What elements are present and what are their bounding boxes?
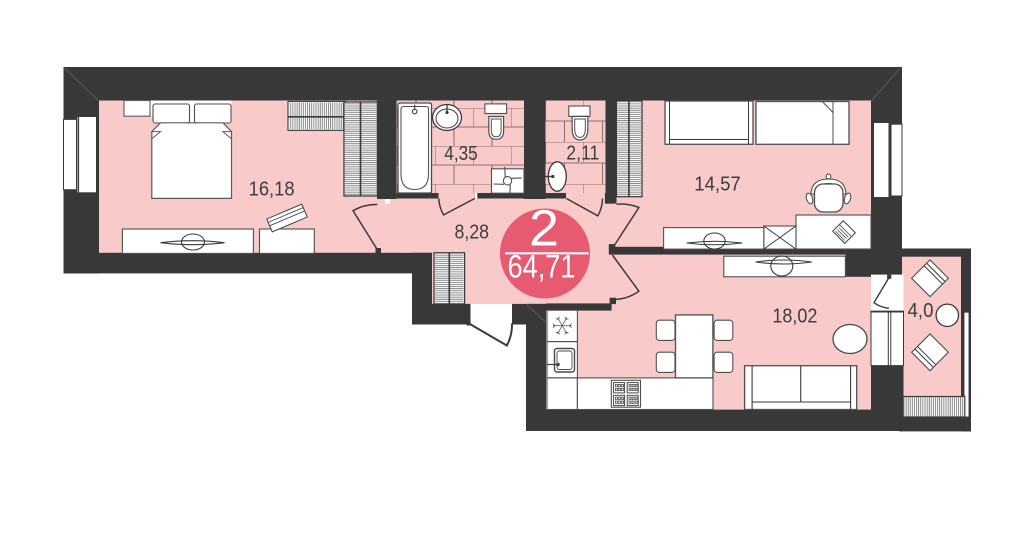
svg-text:18,02: 18,02 [772, 305, 817, 327]
svg-text:4,35: 4,35 [444, 143, 478, 165]
svg-text:16,18: 16,18 [249, 179, 295, 201]
svg-text:14,57: 14,57 [694, 174, 741, 196]
svg-text:2,11: 2,11 [566, 143, 599, 165]
svg-text:4,0: 4,0 [908, 300, 934, 322]
svg-text:64,71: 64,71 [508, 248, 576, 284]
svg-text:8,28: 8,28 [455, 221, 490, 243]
